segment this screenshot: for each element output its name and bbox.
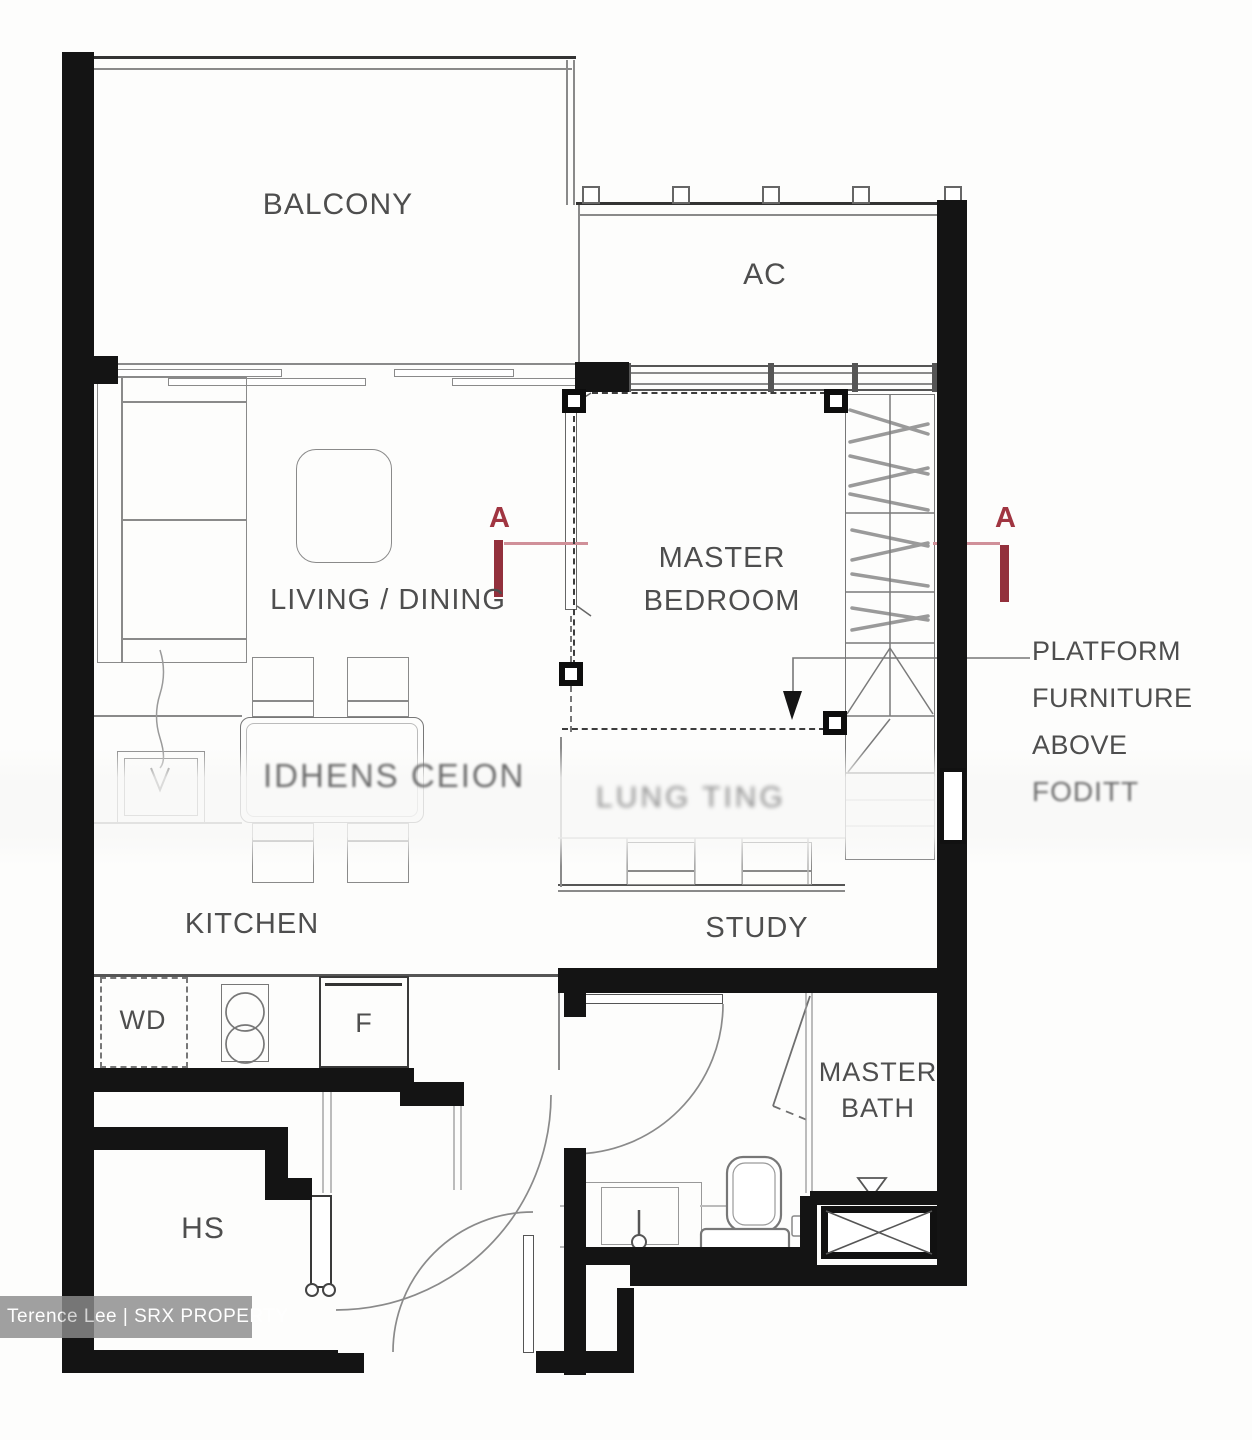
entry-door-arc [336, 1095, 551, 1310]
hs-bottom-wall [62, 1350, 338, 1373]
master-bedroom-label-line2: BEDROOM [644, 585, 801, 618]
kitchen-label: KITCHEN [185, 908, 319, 941]
hs-top-wall [92, 1127, 288, 1150]
door-hinge-icon [322, 1283, 336, 1297]
fridge-handle [325, 983, 402, 986]
entry-step-inner-wall [617, 1288, 634, 1353]
wall-left [62, 52, 94, 1373]
ac-label: AC [743, 258, 787, 292]
platform-corner-marker [562, 389, 586, 413]
basin-faucet-icon [632, 1210, 646, 1249]
balcony-label: BALCONY [263, 188, 413, 222]
railing-post-icon [852, 186, 870, 204]
sliding-door-flares [577, 393, 591, 616]
master-bath-label-line2: BATH [841, 1093, 915, 1124]
platform-corner-marker [823, 711, 847, 735]
door-hinge-icon [305, 1283, 319, 1297]
bath-bottom-wall [572, 1247, 817, 1265]
fridge-label: F [355, 1008, 373, 1039]
platform-corner-marker [559, 662, 583, 686]
wall-right [937, 200, 967, 1286]
platform-corner-marker [824, 389, 848, 413]
toilet-icon [701, 1157, 810, 1253]
bath-top-wall [558, 968, 938, 993]
entry-step-wall [536, 1351, 634, 1373]
platform-dashed-bottom [562, 728, 825, 730]
platform-note-faint: FODITT [1032, 776, 1139, 808]
study-label: STUDY [705, 912, 808, 945]
living-dining-label: LIVING / DINING [270, 584, 506, 617]
corridor-top-wall [400, 1082, 464, 1106]
platform-note-line3: ABOVE [1032, 730, 1128, 761]
hanger-icon [850, 410, 928, 630]
watermark: Terence Lee | SRX PROPERTY [0, 1296, 252, 1338]
washer-dryer-label: WD [120, 1005, 167, 1036]
platform-note-line1: PLATFORM [1032, 636, 1181, 667]
hs-door-leaf [310, 1195, 332, 1288]
bath-left-wall-notch [564, 993, 586, 1017]
down-arrow-icon [783, 691, 802, 720]
entry-door-arc-2 [393, 1212, 533, 1352]
railing-post-icon [762, 186, 780, 204]
unit-bottom-wall-right [630, 1265, 967, 1286]
master-bedroom-label-line1: MASTER [659, 542, 786, 575]
hs-label: HS [181, 1212, 225, 1246]
entry-door-leaf [523, 1235, 534, 1353]
hs-right-wall-nub [265, 1178, 312, 1200]
wall-window-block-mid [575, 362, 629, 392]
railing-post-icon [582, 186, 600, 204]
blurred-text-study: LUNG TING [596, 781, 786, 815]
blurred-text-dining: IDHENS CEION [263, 757, 525, 795]
platform-leader [783, 658, 1030, 720]
shower-bottom-wall [810, 1191, 938, 1205]
railing-post-icon [672, 186, 690, 204]
master-bath-label-line1: MASTER [819, 1057, 938, 1088]
platform-dashed-left [573, 416, 575, 666]
bath-door-arc [573, 1004, 723, 1154]
section-marker-left: A [489, 502, 511, 535]
right-wall-window [940, 768, 966, 844]
bath-door-leaf [570, 994, 723, 1004]
platform-dashed-top [592, 392, 826, 394]
floor-plan-canvas: BALCONY AC LIVING / DINING MASTER BEDROO… [0, 0, 1252, 1440]
hob-burners-icon [226, 993, 264, 1063]
platform-note-line2: FURNITURE [1032, 683, 1193, 714]
section-marker-right: A [995, 502, 1017, 535]
wall-window-block-left [62, 356, 118, 384]
ledge-cross-lines [826, 1211, 932, 1254]
kitchen-bottom-wall [62, 1068, 414, 1092]
hs-bottom-step [326, 1353, 364, 1373]
section-marker-bar [1000, 545, 1009, 602]
watermark-text: Terence Lee | SRX PROPERTY [0, 1306, 289, 1328]
balcony-parapet-top [94, 56, 576, 59]
